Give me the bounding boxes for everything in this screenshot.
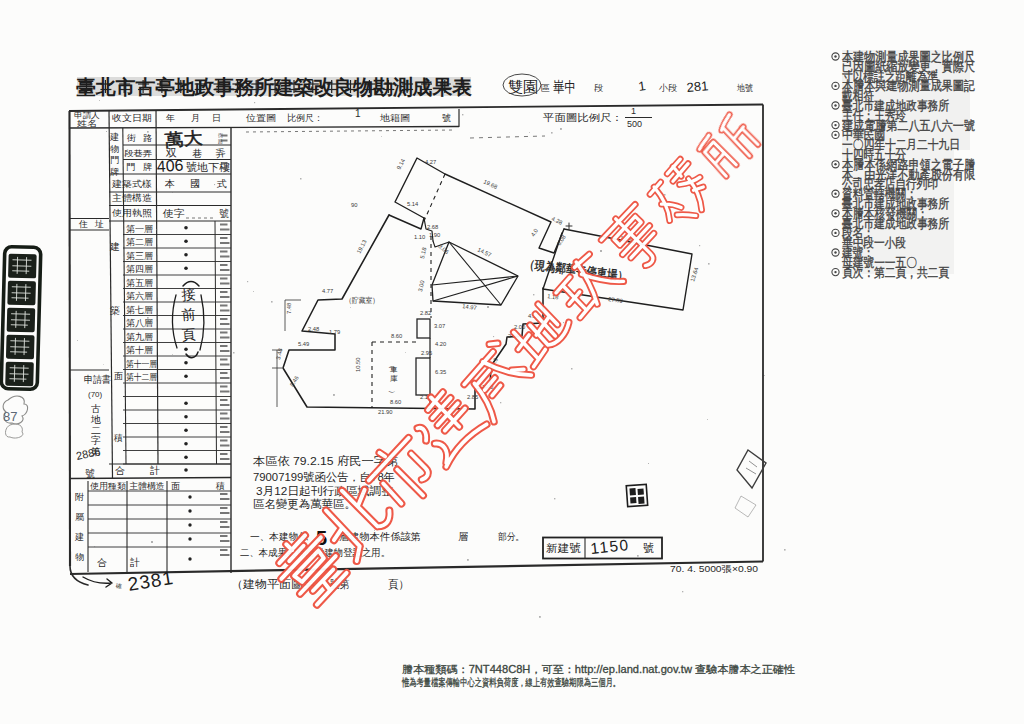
svg-text:頁: 頁: [181, 326, 196, 343]
svg-text:雙園: 雙園: [508, 78, 538, 95]
svg-text:1150: 1150: [590, 536, 631, 557]
svg-text:層: 層: [458, 531, 468, 542]
svg-text:第三層: 第三層: [126, 251, 153, 261]
svg-text:500: 500: [627, 119, 642, 129]
svg-text:位置圖: 位置圖: [246, 113, 276, 123]
svg-text:面: 面: [171, 481, 180, 491]
svg-text:計: 計: [150, 465, 160, 476]
svg-text:主體構造: 主體構造: [112, 193, 152, 203]
svg-text:2381: 2381: [126, 567, 175, 595]
svg-text:前: 前: [181, 306, 196, 323]
svg-text:年: 年: [166, 113, 175, 123]
svg-text:建: 建: [109, 241, 120, 252]
svg-text:27.89: 27.89: [608, 296, 623, 304]
svg-text:月: 月: [191, 113, 200, 123]
svg-text:第七層: 第七層: [126, 305, 153, 315]
svg-text:姓名: 姓名: [77, 119, 97, 128]
svg-text:段: 段: [594, 83, 603, 93]
svg-text:第五層: 第五層: [126, 278, 153, 288]
svg-text:區: 區: [541, 83, 550, 93]
svg-text:式: 式: [216, 178, 227, 189]
svg-text:1: 1: [637, 78, 646, 94]
svg-text:物: 物: [75, 552, 84, 562]
svg-text:2.85: 2.85: [467, 394, 478, 400]
svg-text:段巷弄: 段巷弄: [124, 149, 152, 158]
svg-text:古: 古: [91, 403, 101, 414]
svg-text:第四層: 第四層: [126, 264, 153, 274]
svg-text:路: 路: [143, 133, 152, 143]
svg-text:5.14: 5.14: [407, 201, 419, 207]
svg-text:8.60: 8.60: [390, 399, 401, 405]
svg-text:新建號: 新建號: [546, 542, 581, 554]
svg-text:1: 1: [355, 108, 361, 119]
svg-text:物: 物: [110, 144, 119, 154]
svg-text:第十一層: 第十一層: [126, 359, 157, 369]
svg-text:13.64: 13.64: [689, 266, 699, 282]
svg-text:70. 4. 5000張×0.90: 70. 4. 5000張×0.90: [670, 564, 758, 574]
svg-text:主體構造: 主體構造: [129, 481, 165, 491]
svg-text:庫: 庫: [390, 374, 398, 383]
svg-text:建: 建: [109, 132, 119, 142]
svg-text:弄: 弄: [215, 147, 226, 159]
svg-text:(70): (70): [88, 390, 103, 399]
svg-text:4.27: 4.27: [425, 159, 436, 165]
svg-text:頁）: 頁）: [388, 578, 409, 590]
svg-text:2.95: 2.95: [421, 350, 432, 356]
svg-text:19.13: 19.13: [356, 239, 368, 255]
svg-text:車: 車: [390, 365, 398, 374]
svg-text:1.10: 1.10: [414, 234, 425, 240]
svg-text:牌: 牌: [143, 162, 152, 172]
svg-text:小段: 小段: [658, 83, 677, 93]
svg-text:門: 門: [110, 155, 119, 165]
svg-text:5.49: 5.49: [298, 341, 309, 347]
svg-text:4.0: 4.0: [530, 228, 539, 238]
svg-text:號: 號: [85, 468, 95, 479]
svg-text:2.82: 2.82: [420, 310, 431, 316]
svg-text:4.20: 4.20: [435, 341, 446, 347]
svg-text:合: 合: [97, 557, 107, 568]
svg-text:附: 附: [75, 492, 84, 502]
svg-text:8.60: 8.60: [391, 333, 402, 339]
svg-text:址: 址: [94, 219, 104, 229]
svg-text:2886: 2886: [75, 445, 101, 462]
svg-text:申請書: 申請書: [84, 374, 111, 385]
svg-text:本區依 79.2.15 府民一字第: 本區依 79.2.15 府民一字第: [253, 455, 399, 467]
svg-text:街: 街: [127, 133, 136, 143]
svg-text:使字: 使字: [162, 208, 185, 219]
svg-text:3.00: 3.00: [417, 280, 425, 292]
svg-text:惟為考量檔案傳輸中心之資料負荷度，線上有效查驗期限為三個月。: 惟為考量檔案傳輸中心之資料負荷度，線上有效查驗期限為三個月。: [401, 676, 620, 688]
svg-text:（貯藏室）: （貯藏室）: [345, 296, 379, 305]
svg-text:地籍圖: 地籍圖: [379, 113, 410, 123]
svg-text:住: 住: [78, 219, 88, 229]
svg-text:牌: 牌: [110, 167, 119, 177]
svg-text:9.14: 9.14: [396, 157, 407, 170]
svg-text:406: 406: [156, 157, 184, 175]
svg-text:臺北市古亭地政事務所建築改良物勘測成果表: 臺北市古亭地政事務所建築改良物勘測成果表: [76, 76, 472, 98]
svg-text:第二層: 第二層: [126, 237, 153, 247]
svg-text:二: 二: [91, 425, 101, 436]
svg-text:）: ）: [388, 390, 396, 397]
svg-text:平面圖比例尺：: 平面圖比例尺：: [543, 112, 623, 123]
svg-text:2.48: 2.48: [308, 326, 319, 332]
svg-text:本: 本: [164, 178, 175, 189]
svg-text:建築式樣: 建築式樣: [111, 179, 152, 189]
svg-text:21.90: 21.90: [378, 409, 393, 415]
svg-text:6.08: 6.08: [556, 234, 567, 247]
svg-text:使用執照: 使用執照: [111, 208, 152, 218]
svg-text:第八層: 第八層: [126, 318, 153, 328]
svg-text:第六層: 第六層: [126, 291, 153, 301]
svg-text:門: 門: [126, 162, 135, 172]
svg-text:1.79: 1.79: [329, 329, 340, 335]
svg-text:5.18: 5.18: [419, 247, 427, 259]
svg-text:積: 積: [113, 433, 123, 443]
svg-text:頁次：第二頁，共二頁: 頁次：第二頁，共二頁: [842, 265, 949, 280]
svg-text:1.90: 1.90: [429, 232, 440, 238]
svg-text:地: 地: [90, 414, 101, 425]
svg-text:收文日期: 收文日期: [112, 113, 152, 123]
svg-text:3月12日起刊行政區域調整: 3月12日起刊行政區域調整: [256, 485, 394, 497]
svg-text:第一層: 第一層: [126, 224, 153, 234]
svg-text:確: 確: [115, 583, 122, 589]
svg-text:號: 號: [219, 208, 229, 219]
svg-text:90: 90: [351, 202, 357, 208]
svg-text:第十二層: 第十二層: [126, 372, 157, 382]
svg-text:比例尺：: 比例尺：: [287, 113, 323, 123]
svg-text:號: 號: [643, 542, 654, 554]
svg-text:謄本種類碼：7NT448C8H，可至：http://ep.l: 謄本種類碼：7NT448C8H，可至：http://ep.land.nat.go…: [402, 663, 795, 675]
svg-text:國: 國: [190, 178, 200, 189]
svg-text:建: 建: [74, 532, 84, 542]
svg-text:10.50: 10.50: [355, 357, 361, 372]
svg-text:屬: 屬: [75, 512, 84, 522]
svg-text:計: 計: [130, 557, 140, 568]
svg-text:第十層: 第十層: [126, 345, 153, 355]
svg-text:地號: 地號: [736, 83, 753, 93]
svg-text:2.68: 2.68: [427, 224, 438, 230]
svg-text:接: 接: [181, 286, 196, 303]
svg-text:2.00: 2.00: [514, 324, 525, 330]
svg-text:部分。: 部分。: [498, 531, 524, 542]
svg-text:3.07: 3.07: [434, 323, 445, 329]
svg-text:巷: 巷: [192, 148, 202, 159]
svg-text:14.97: 14.97: [462, 303, 477, 311]
svg-text:4.77: 4.77: [322, 288, 333, 294]
svg-text:面: 面: [114, 371, 123, 381]
svg-text:區名變更為萬華區。: 區名變更為萬華區。: [253, 498, 356, 510]
svg-text:6.35: 6.35: [435, 369, 446, 375]
svg-text:1: 1: [631, 106, 636, 116]
svg-text:87: 87: [3, 409, 17, 424]
svg-text:7.48: 7.48: [286, 303, 292, 314]
svg-text:崋中: 崋中: [553, 78, 576, 95]
svg-text:3.48: 3.48: [275, 348, 283, 360]
svg-text:8.46: 8.46: [289, 375, 300, 388]
svg-text:281: 281: [686, 78, 709, 95]
svg-text:號: 號: [442, 113, 451, 123]
svg-text:使用種類: 使用種類: [90, 481, 127, 491]
svg-text:4.28: 4.28: [551, 215, 564, 225]
svg-text:19.68: 19.68: [483, 178, 499, 190]
svg-text:日: 日: [212, 113, 221, 123]
svg-text:積: 積: [215, 481, 225, 491]
svg-text:第九層: 第九層: [126, 332, 153, 342]
svg-text:築: 築: [110, 305, 120, 316]
svg-text:合: 合: [115, 465, 125, 476]
